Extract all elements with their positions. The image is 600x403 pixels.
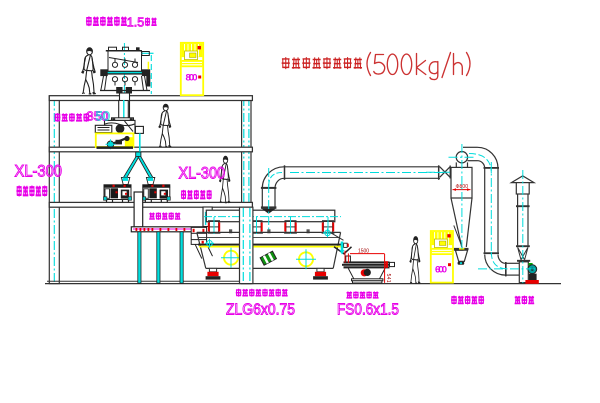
svg-text:50: 50 — [96, 109, 110, 124]
svg-text:600: 600 — [435, 265, 447, 276]
svg-text:XL-300: XL-300 — [179, 165, 226, 183]
svg-text:1500: 1500 — [358, 249, 369, 255]
svg-text:800: 800 — [186, 73, 198, 84]
svg-text:1.5: 1.5 — [127, 16, 144, 30]
svg-text:541: 541 — [385, 274, 391, 283]
svg-text:ZLG6x0.75: ZLG6x0.75 — [226, 302, 295, 319]
svg-text:FS0.6x1.5: FS0.6x1.5 — [337, 302, 399, 319]
svg-text:XL-300: XL-300 — [15, 163, 63, 181]
